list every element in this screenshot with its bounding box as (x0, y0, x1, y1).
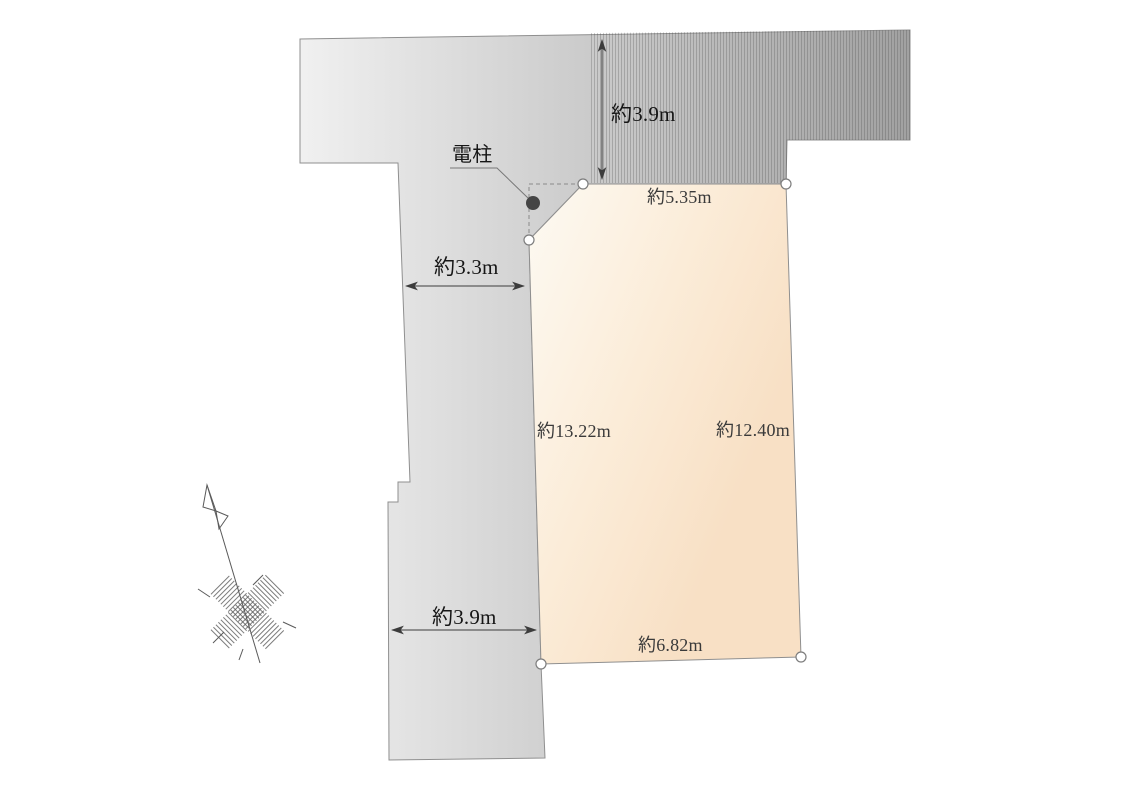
label-boundary-top: 約5.35m (647, 187, 712, 208)
label-boundary-right: 約12.40m (716, 420, 790, 441)
north-arrow-icon (198, 485, 296, 663)
corner-marker (536, 659, 546, 669)
corner-marker (578, 179, 588, 189)
site-plan-drawing (0, 0, 1132, 800)
label-boundary-left: 約13.22m (537, 421, 611, 442)
label-road-left-width: 約3.3m (434, 255, 499, 279)
site-plan: 約3.9m 約5.35m 約3.3m 約13.22m 約12.40m 約6.82… (0, 0, 1132, 800)
corner-marker (796, 652, 806, 662)
label-road-bottom-width: 約3.9m (432, 605, 497, 629)
utility-pole-marker (526, 196, 540, 210)
corner-marker (781, 179, 791, 189)
label-boundary-bottom: 約6.82m (638, 635, 703, 656)
label-road-top-width: 約3.9m (611, 102, 676, 126)
label-utility-pole: 電柱 (452, 144, 492, 167)
corner-marker (524, 235, 534, 245)
